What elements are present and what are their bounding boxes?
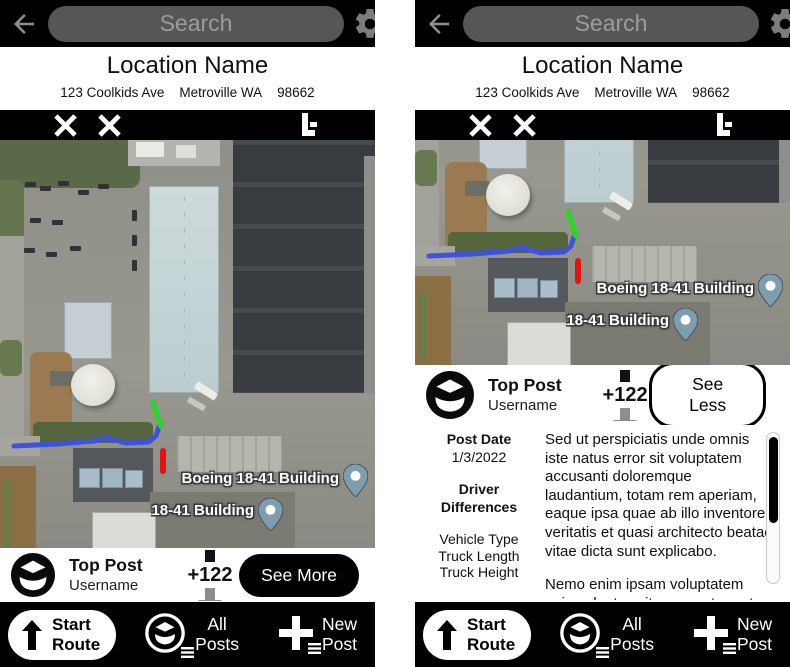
map-toolbar xyxy=(415,110,790,140)
settings-button[interactable] xyxy=(766,5,790,43)
close-icons-group xyxy=(50,112,125,139)
post-title: Top Post xyxy=(488,375,589,397)
search-input[interactable] xyxy=(463,6,759,42)
post-text: Top Post Username xyxy=(69,555,173,596)
address-city: Metroville WA xyxy=(594,85,677,100)
menu-lines-icon xyxy=(596,647,609,658)
new-post-button[interactable]: New Post xyxy=(279,615,357,654)
post-text: Top Post Username xyxy=(488,375,589,416)
bottom-nav-bar: Start Route All Posts xyxy=(415,602,790,667)
post-body-paragraph: Sed ut perspiciatis unde omnis iste natu… xyxy=(545,431,773,561)
upvote-button[interactable] xyxy=(197,550,223,562)
phone-screen-expanded: Location Name 123 Coolkids Ave Metrovill… xyxy=(415,0,790,667)
start-route-label: Start Route xyxy=(467,615,515,653)
gear-icon xyxy=(352,6,375,42)
post-username[interactable]: Username xyxy=(69,577,173,596)
storage-tank xyxy=(486,174,530,216)
route-corner-icon[interactable] xyxy=(714,112,738,138)
search-input[interactable] xyxy=(48,6,344,42)
map-label-text: 18-41 Building xyxy=(566,312,669,329)
back-button[interactable] xyxy=(7,7,41,41)
avatar-logo-icon[interactable] xyxy=(425,370,475,420)
small-building-roof xyxy=(479,140,527,169)
address-zip: 98662 xyxy=(277,85,315,100)
upvote-icon xyxy=(197,550,223,562)
scrollbar[interactable] xyxy=(766,432,780,584)
upvote-icon xyxy=(612,370,638,382)
start-route-button[interactable]: Start Route xyxy=(423,610,531,660)
post-date-value: 1/3/2022 xyxy=(423,449,535,467)
new-post-label: New Post xyxy=(737,615,772,654)
downvote-button[interactable] xyxy=(197,588,223,601)
close-icons-group xyxy=(465,112,540,139)
menu-lines-icon xyxy=(181,647,194,658)
post-meta-column: Post Date 1/3/2022 Driver Differences Ve… xyxy=(423,431,535,600)
map-label-text: 18-41 Building xyxy=(151,502,254,519)
location-card: Location Name 123 Coolkids Ave Metrovill… xyxy=(0,47,375,110)
avatar-logo-icon[interactable] xyxy=(10,552,56,598)
start-route-label: Start Route xyxy=(52,615,100,653)
pale-building-roof xyxy=(564,140,634,203)
downvote-icon xyxy=(612,408,638,421)
app-logo-icon xyxy=(559,612,601,654)
map-label-1841-building[interactable]: 18-41 Building xyxy=(566,312,698,341)
satellite-imagery: Boeing 18-41 Building 18-41 Building xyxy=(0,140,375,548)
map-label-1841-building[interactable]: 18-41 Building xyxy=(151,502,283,531)
back-button[interactable] xyxy=(422,7,456,41)
dark-building-roof xyxy=(648,140,790,203)
map-pin-icon[interactable] xyxy=(673,308,698,341)
vote-count: +122 xyxy=(603,382,648,408)
settings-button[interactable] xyxy=(351,5,375,43)
address-street: 123 Coolkids Ave xyxy=(60,85,164,100)
map-label-text: Boeing 18-41 Building xyxy=(596,280,754,297)
downvote-icon xyxy=(197,588,223,601)
boeing-building-roof xyxy=(591,245,698,283)
map-label-boeing-building[interactable]: Boeing 18-41 Building xyxy=(596,280,783,307)
location-name: Location Name xyxy=(415,52,790,81)
phone-screen-collapsed: Location Name 123 Coolkids Ave Metrovill… xyxy=(0,0,375,667)
vote-widget: +122 xyxy=(185,548,235,602)
satellite-imagery: Boeing 18-41 Building 18-41 Building xyxy=(415,140,790,365)
app-logo-icon xyxy=(144,612,186,654)
top-app-bar xyxy=(0,0,375,47)
all-posts-label: All Posts xyxy=(610,615,654,654)
downvote-button[interactable] xyxy=(612,408,638,421)
bottom-nav-bar: Start Route All Posts xyxy=(0,602,375,667)
map-pin-icon[interactable] xyxy=(258,498,283,531)
address-street: 123 Coolkids Ave xyxy=(475,85,579,100)
dark-building-roof xyxy=(233,140,375,393)
close-icon[interactable] xyxy=(509,112,540,139)
map-pin-icon[interactable] xyxy=(343,464,368,497)
all-posts-button[interactable]: All Posts xyxy=(559,612,654,657)
upvote-button[interactable] xyxy=(612,370,638,382)
vote-count: +122 xyxy=(187,562,232,588)
hedge-row xyxy=(33,422,153,443)
top-post-row: Top Post Username +122 See More xyxy=(0,548,375,602)
see-more-button[interactable]: See More xyxy=(239,554,359,597)
storage-tank xyxy=(71,364,115,406)
map-toolbar xyxy=(0,110,375,140)
close-icon[interactable] xyxy=(465,112,496,139)
start-route-button[interactable]: Start Route xyxy=(8,610,116,660)
boeing-building-roof xyxy=(176,435,283,473)
location-card: Location Name 123 Coolkids Ave Metrovill… xyxy=(415,47,790,110)
route-segment-green xyxy=(568,212,576,236)
location-name: Location Name xyxy=(0,52,375,81)
satellite-map[interactable]: Boeing 18-41 Building 18-41 Building xyxy=(0,140,375,548)
close-icon[interactable] xyxy=(50,112,81,139)
vote-widget: +122 xyxy=(601,365,649,425)
address-city: Metroville WA xyxy=(179,85,262,100)
gear-icon xyxy=(767,6,790,42)
back-arrow-icon xyxy=(424,9,454,39)
arrow-up-icon xyxy=(21,619,43,651)
spec-truck-length: Truck Length xyxy=(423,548,535,565)
post-body-text: Sed ut perspiciatis unde omnis iste natu… xyxy=(545,431,773,600)
post-body-paragraph: Nemo enim ipsam voluptatem quia voluptas… xyxy=(545,576,773,600)
new-post-button[interactable]: New Post xyxy=(694,615,772,654)
top-app-bar xyxy=(415,0,790,47)
location-address: 123 Coolkids Ave Metroville WA 98662 xyxy=(415,85,790,100)
post-details-panel: Post Date 1/3/2022 Driver Differences Ve… xyxy=(415,425,790,600)
location-address: 123 Coolkids Ave Metroville WA 98662 xyxy=(0,85,375,100)
post-username[interactable]: Username xyxy=(488,397,589,416)
all-posts-button[interactable]: All Posts xyxy=(144,612,239,657)
map-pin-icon[interactable] xyxy=(758,274,783,307)
menu-lines-icon xyxy=(723,643,736,654)
map-label-boeing-building[interactable]: Boeing 18-41 Building xyxy=(181,470,368,497)
post-title: Top Post xyxy=(69,555,173,577)
menu-lines-icon xyxy=(308,643,321,654)
close-icon[interactable] xyxy=(94,112,125,139)
all-posts-label: All Posts xyxy=(195,615,239,654)
arrow-up-icon xyxy=(436,619,458,651)
mockup-canvas: Location Name 123 Coolkids Ave Metrovill… xyxy=(0,0,790,667)
post-date-label: Post Date xyxy=(423,431,535,449)
route-segment-green xyxy=(153,402,161,426)
route-corner-icon[interactable] xyxy=(299,112,323,138)
spec-truck-height: Truck Height xyxy=(423,564,535,581)
satellite-map[interactable]: Boeing 18-41 Building 18-41 Building xyxy=(415,140,790,365)
top-post-row: Top Post Username +122 See Less xyxy=(415,365,790,425)
scrollbar-thumb[interactable] xyxy=(769,437,778,523)
spec-vehicle-type: Vehicle Type xyxy=(423,531,535,548)
see-less-button[interactable]: See Less xyxy=(649,362,766,428)
map-label-text: Boeing 18-41 Building xyxy=(181,470,339,487)
address-zip: 98662 xyxy=(692,85,730,100)
small-building-roof xyxy=(64,302,112,359)
back-arrow-icon xyxy=(9,9,39,39)
pale-building-roof xyxy=(149,186,219,393)
new-post-label: New Post xyxy=(322,615,357,654)
driver-differences-label: Driver Differences xyxy=(423,481,535,516)
hedge-row xyxy=(448,232,568,253)
